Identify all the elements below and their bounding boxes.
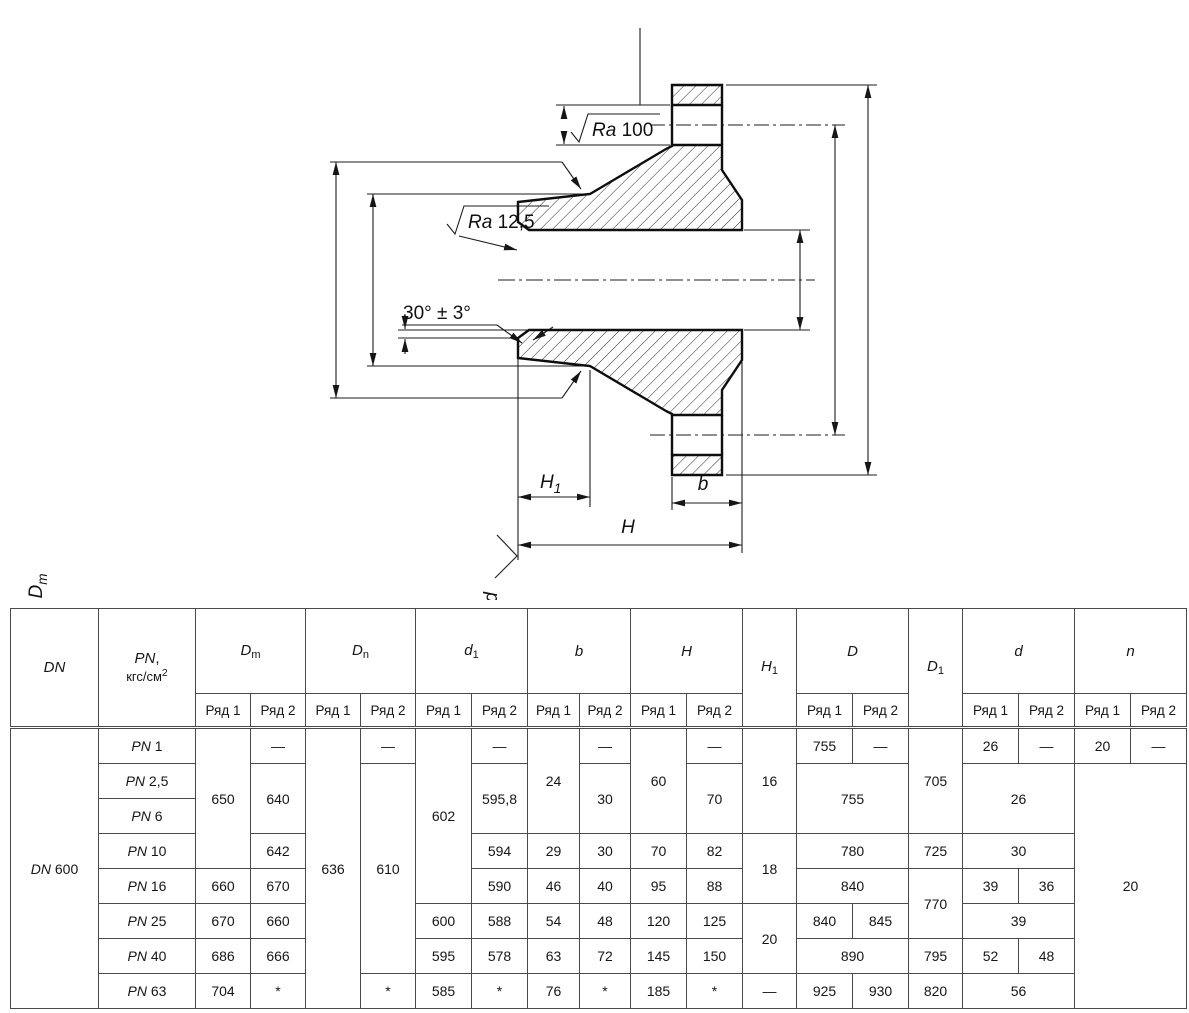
value-cell: 145 (631, 939, 687, 974)
value-cell: 46 (528, 869, 580, 904)
col-header-D1: D1 (909, 609, 963, 728)
value-cell: — (743, 974, 797, 1009)
flange-drawing: n отв. d Ra 100 Ra 12,5 Ra 50 30° ± 3° 1… (0, 0, 1189, 600)
value-cell: 704 (196, 974, 251, 1009)
value-cell: 588 (472, 904, 528, 939)
table-row: PN 10642594293070821878072530 (11, 834, 1187, 869)
subcol-header-D-ryad2: Ряд 2 (853, 694, 909, 728)
page: { "drawing": { "labels": { "n_otv": { "n… (0, 0, 1189, 1013)
table-row: PN 16660670590464095888407703936 (11, 869, 1187, 904)
label-Dm: Dm (26, 574, 50, 599)
subcol-header-Dm-ryad1: Ряд 1 (196, 694, 251, 728)
col-header-PN: PN,кгс/см2 (99, 609, 196, 728)
value-cell: 590 (472, 869, 528, 904)
subcol-header-Dn-ryad1: Ряд 1 (306, 694, 361, 728)
value-cell: 95 (631, 869, 687, 904)
value-cell: 686 (196, 939, 251, 974)
value-cell: 600 (416, 904, 472, 939)
value-cell: 36 (1019, 869, 1075, 904)
value-cell: — (580, 728, 631, 764)
value-cell: 642 (251, 834, 306, 869)
pn-cell: PN 63 (99, 974, 196, 1009)
value-cell: 650 (196, 728, 251, 869)
value-cell: 755 (797, 728, 853, 764)
value-cell: * (687, 974, 743, 1009)
value-cell: 925 (797, 974, 853, 1009)
col-header-D: D (797, 609, 909, 694)
value-cell: 26 (963, 764, 1075, 834)
value-cell: 594 (472, 834, 528, 869)
value-cell: * (251, 974, 306, 1009)
col-header-Dm: Dm (196, 609, 306, 694)
value-cell: — (361, 728, 416, 764)
value-cell: * (580, 974, 631, 1009)
value-cell: 20 (743, 904, 797, 974)
value-cell: 20 (1075, 764, 1187, 1009)
flange-section-svg: n отв. d Ra 100 Ra 12,5 Ra 50 30° ± 3° 1… (0, 0, 1189, 600)
value-cell: — (1131, 728, 1187, 764)
value-cell: 840 (797, 869, 909, 904)
spec-table-body: DN 600PN 1650—636—602—24—60—16755—70526—… (11, 728, 1187, 1009)
label-ra125: Ra 12,5 (468, 212, 535, 233)
value-cell: 602 (416, 728, 472, 904)
value-cell: 770 (909, 869, 963, 939)
value-cell: 26 (963, 728, 1019, 764)
value-cell: 725 (909, 834, 963, 869)
value-cell: 845 (853, 904, 909, 939)
subcol-header-D-ryad1: Ряд 1 (797, 694, 853, 728)
value-cell: 636 (306, 728, 361, 1009)
table-row: PN 63704**585*76*185*—92593082056 (11, 974, 1187, 1009)
flange-ring-upper-outer (672, 85, 722, 105)
value-cell: 120 (631, 904, 687, 939)
label-H: H (621, 517, 635, 538)
value-cell: 82 (687, 834, 743, 869)
value-cell: 52 (963, 939, 1019, 974)
value-cell: — (853, 728, 909, 764)
col-header-H1: H1 (743, 609, 797, 728)
label-angle: 30° ± 3° (403, 303, 471, 324)
value-cell: — (251, 728, 306, 764)
pn-cell: PN 40 (99, 939, 196, 974)
subcol-header-d-ryad1: Ряд 1 (963, 694, 1019, 728)
subcol-header-Dn-ryad2: Ряд 2 (361, 694, 416, 728)
value-cell: 29 (528, 834, 580, 869)
label-b: b (698, 474, 709, 495)
value-cell: 16 (743, 728, 797, 834)
pn-cell: PN 10 (99, 834, 196, 869)
table-row: PN 2567066060058854481201252084084539 (11, 904, 1187, 939)
value-cell: 48 (580, 904, 631, 939)
col-header-H: H (631, 609, 743, 694)
value-cell: 660 (196, 869, 251, 904)
flange-body-upper (518, 145, 742, 230)
label-H1: H1 (540, 472, 561, 496)
value-cell: 585 (416, 974, 472, 1009)
flange-dimension-table: DNPN,кгс/см2DmDnd1bHH1DD1dnРяд 1Ряд 2Ряд… (10, 608, 1187, 1009)
pn-cell: PN 1 (99, 728, 196, 764)
value-cell: 670 (251, 869, 306, 904)
value-cell: 76 (528, 974, 580, 1009)
dn-cell: DN 600 (11, 728, 99, 1009)
col-header-b: b (528, 609, 631, 694)
value-cell: 780 (797, 834, 909, 869)
value-cell: 150 (687, 939, 743, 974)
value-cell: * (361, 974, 416, 1009)
col-header-d1: d1 (416, 609, 528, 694)
value-cell: 666 (251, 939, 306, 974)
value-cell: 610 (361, 764, 416, 974)
value-cell: 660 (251, 904, 306, 939)
value-cell: — (1019, 728, 1075, 764)
value-cell: 755 (797, 764, 909, 834)
value-cell: 795 (909, 939, 963, 974)
value-cell: 670 (196, 904, 251, 939)
subcol-header-n-ryad1: Ряд 1 (1075, 694, 1131, 728)
value-cell: 70 (631, 834, 687, 869)
value-cell: 18 (743, 834, 797, 904)
col-header-Dn: Dn (306, 609, 416, 694)
value-cell: 820 (909, 974, 963, 1009)
table-row: DN 600PN 1650—636—602—24—60—16755—70526—… (11, 728, 1187, 764)
pn-cell: PN 2,5 (99, 764, 196, 799)
col-header-n: n (1075, 609, 1187, 694)
value-cell: 60 (631, 728, 687, 834)
subcol-header-d-ryad2: Ряд 2 (1019, 694, 1075, 728)
label-ra100: Ra 100 (592, 120, 653, 141)
value-cell: 125 (687, 904, 743, 939)
pn-cell: PN 25 (99, 904, 196, 939)
value-cell: 595 (416, 939, 472, 974)
value-cell: 39 (963, 869, 1019, 904)
value-cell: 930 (853, 974, 909, 1009)
value-cell: 40 (580, 869, 631, 904)
table-row: PN 2,5640610595,830707552620 (11, 764, 1187, 799)
col-header-d: d (963, 609, 1075, 694)
value-cell: 890 (797, 939, 909, 974)
value-cell: 640 (251, 764, 306, 834)
subcol-header-d1-ryad1: Ряд 1 (416, 694, 472, 728)
pn-cell: PN 6 (99, 799, 196, 834)
value-cell: 24 (528, 728, 580, 834)
value-cell: 20 (1075, 728, 1131, 764)
subcol-header-H-ryad1: Ряд 1 (631, 694, 687, 728)
value-cell: 840 (797, 904, 853, 939)
value-cell: 48 (1019, 939, 1075, 974)
value-cell: 578 (472, 939, 528, 974)
value-cell: — (687, 728, 743, 764)
subcol-header-n-ryad2: Ряд 2 (1131, 694, 1187, 728)
flange-ring-lower-outer (672, 455, 722, 475)
value-cell: 63 (528, 939, 580, 974)
value-cell: 70 (687, 764, 743, 834)
subcol-header-Dm-ryad2: Ряд 2 (251, 694, 306, 728)
value-cell: 185 (631, 974, 687, 1009)
value-cell: * (472, 974, 528, 1009)
pn-cell: PN 16 (99, 869, 196, 904)
value-cell: 39 (963, 904, 1075, 939)
value-cell: 72 (580, 939, 631, 974)
subcol-header-H-ryad2: Ряд 2 (687, 694, 743, 728)
value-cell: 595,8 (472, 764, 528, 834)
value-cell: — (472, 728, 528, 764)
subcol-header-d1-ryad2: Ряд 2 (472, 694, 528, 728)
value-cell: 30 (580, 834, 631, 869)
value-cell: 88 (687, 869, 743, 904)
value-cell: 705 (909, 728, 963, 834)
col-header-DN: DN (11, 609, 99, 728)
value-cell: 30 (963, 834, 1075, 869)
label-n-holes: n отв. d (481, 591, 502, 600)
flange-body-lower (518, 330, 742, 415)
spec-table-head: DNPN,кгс/см2DmDnd1bHH1DD1dnРяд 1Ряд 2Ряд… (11, 609, 1187, 728)
value-cell: 30 (580, 764, 631, 834)
subcol-header-b-ryad2: Ряд 2 (580, 694, 631, 728)
subcol-header-b-ryad1: Ряд 1 (528, 694, 580, 728)
value-cell: 54 (528, 904, 580, 939)
value-cell: 56 (963, 974, 1075, 1009)
table-row: PN 4068666659557863721451508907955248 (11, 939, 1187, 974)
roughness-symbol-ra50 (495, 535, 517, 578)
